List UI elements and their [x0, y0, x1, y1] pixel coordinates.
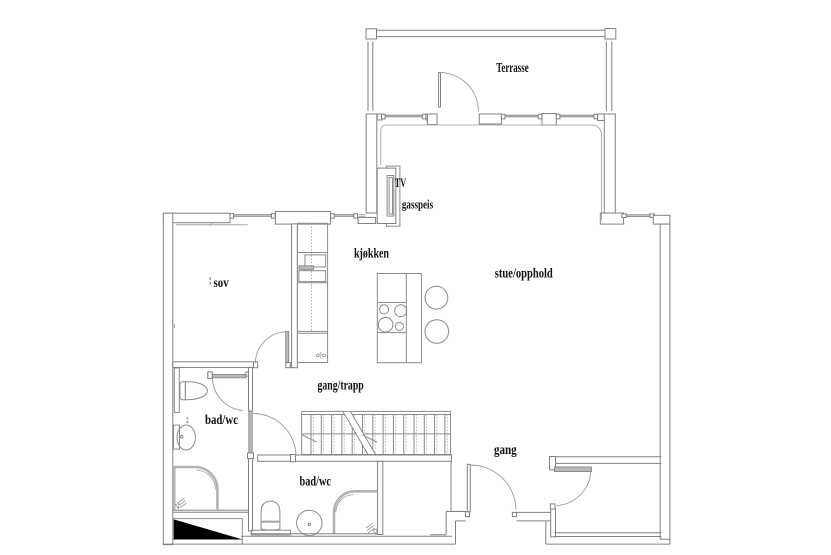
- svg-text:stue/opphold: stue/opphold: [495, 266, 553, 281]
- svg-text:gasspeis: gasspeis: [402, 197, 433, 212]
- svg-text:gang/trapp: gang/trapp: [318, 378, 364, 393]
- svg-text:sov: sov: [214, 275, 229, 290]
- svg-text:bad/wc: bad/wc: [300, 473, 332, 488]
- svg-text:bad/wc: bad/wc: [205, 412, 238, 427]
- svg-text:kjøkken: kjøkken: [354, 246, 389, 261]
- svg-text:TV: TV: [395, 176, 406, 190]
- svg-text:gang: gang: [494, 442, 517, 457]
- svg-text:Terrasse: Terrasse: [496, 60, 529, 75]
